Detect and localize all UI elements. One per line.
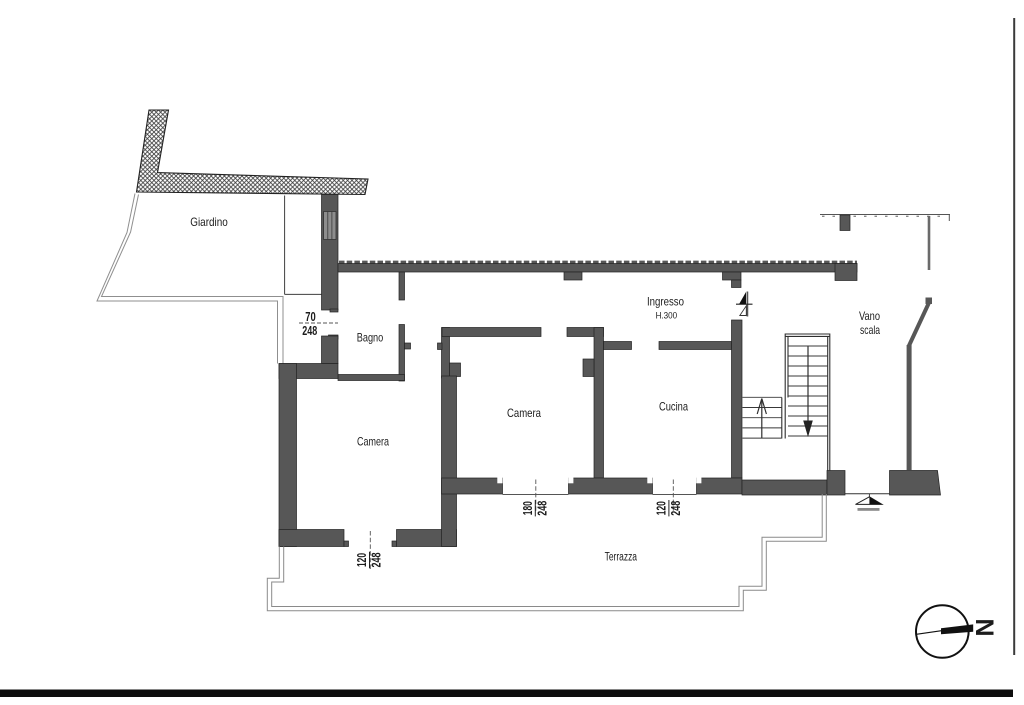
- svg-text:Ingresso: Ingresso: [647, 294, 684, 308]
- svg-text:Giardino: Giardino: [190, 215, 228, 229]
- svg-text:Terrazza: Terrazza: [605, 552, 638, 564]
- svg-text:N: N: [970, 619, 998, 637]
- svg-text:120: 120: [354, 553, 369, 567]
- svg-text:Cucina: Cucina: [659, 400, 688, 414]
- svg-text:Camera: Camera: [507, 406, 541, 420]
- svg-text:H.300: H.300: [656, 310, 678, 321]
- svg-text:248: 248: [369, 553, 384, 568]
- svg-text:248: 248: [668, 501, 683, 516]
- svg-text:180: 180: [520, 501, 535, 515]
- svg-text:248: 248: [535, 501, 550, 516]
- svg-text:120: 120: [653, 501, 668, 515]
- svg-text:Camera: Camera: [357, 435, 389, 449]
- svg-text:scala: scala: [860, 323, 880, 337]
- svg-text:Bagno: Bagno: [357, 331, 384, 345]
- svg-text:70: 70: [305, 309, 316, 324]
- svg-text:248: 248: [302, 323, 317, 338]
- svg-text:Vano: Vano: [859, 309, 880, 323]
